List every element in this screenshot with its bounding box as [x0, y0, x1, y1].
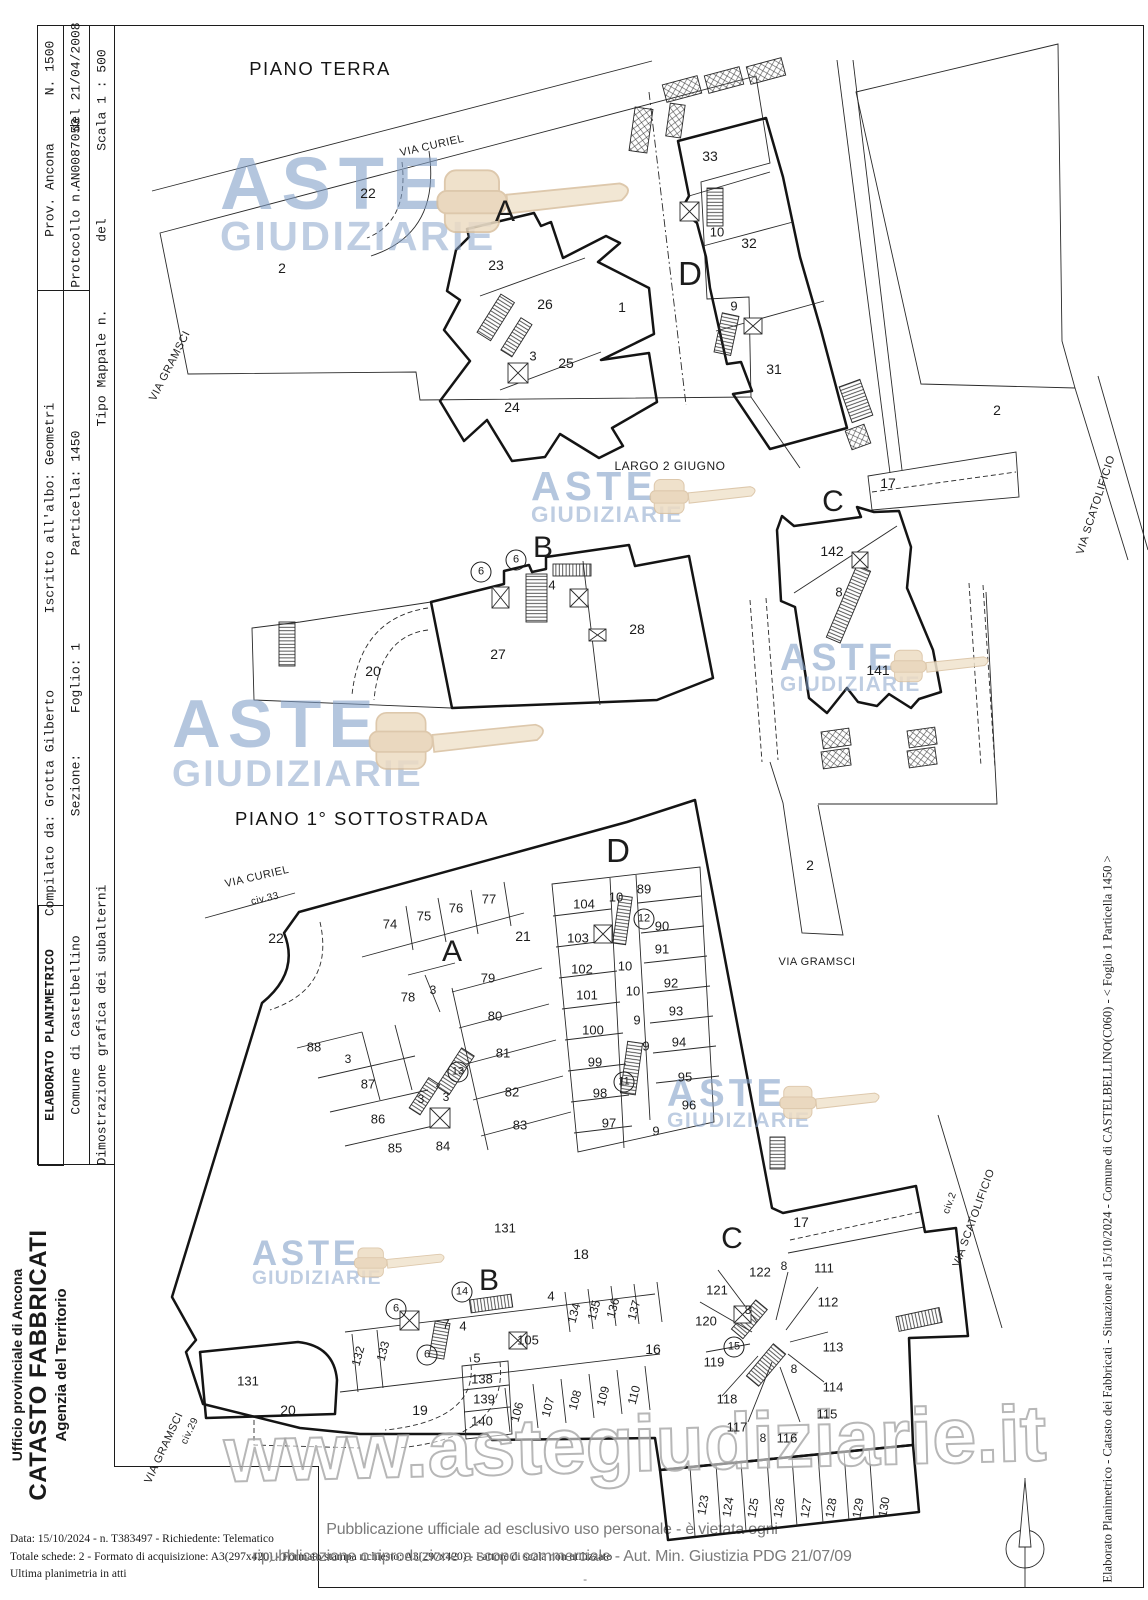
- plan-labels-layer: PIANO TERRA PIANO 1° SOTTOSTRADA VIA CUR…: [0, 0, 1148, 1600]
- parcel-number: 98: [593, 1086, 607, 1101]
- parcel-number: 95: [678, 1070, 692, 1085]
- parcel-number: 119: [704, 1355, 725, 1370]
- parcel-number: 134: [565, 1302, 584, 1325]
- parcel-number: 28: [629, 621, 645, 637]
- parcel-number: 99: [588, 1055, 602, 1070]
- parcel-number: 100: [582, 1023, 604, 1038]
- parcel-number: 115: [817, 1407, 838, 1422]
- parcel-number: 132: [349, 1345, 368, 1368]
- parcel-number: 77: [482, 892, 496, 907]
- parcel-number: 125: [744, 1497, 761, 1519]
- parcel-number: 108: [566, 1389, 585, 1412]
- parcel-number: 122: [749, 1265, 771, 1280]
- parcel-number: 129: [849, 1497, 866, 1519]
- parcel-number: 8: [745, 1303, 752, 1317]
- parcel-number: 105: [517, 1333, 539, 1348]
- building-letter: B: [533, 531, 553, 565]
- parcel-number: 97: [602, 1116, 616, 1131]
- parcel-number: 110: [625, 1384, 643, 1406]
- parcel-number: 107: [539, 1396, 558, 1419]
- parcel-number: 91: [655, 942, 669, 957]
- parcel-number: 94: [672, 1035, 686, 1050]
- parcel-number: 81: [496, 1046, 510, 1061]
- parcel-number: 116: [777, 1431, 798, 1446]
- parcel-number: 21: [515, 928, 531, 944]
- parcel-number: 75: [417, 909, 431, 924]
- street-label: VIA SCATOLIFICIO: [951, 1167, 998, 1268]
- parcel-number: 136: [604, 1297, 623, 1320]
- parcel-number: 4: [548, 578, 555, 593]
- parcel-number: 24: [504, 399, 520, 415]
- parcel-number: 9: [730, 299, 737, 314]
- parcel-number: 109: [594, 1385, 613, 1408]
- parcel-number: 10: [710, 225, 724, 240]
- parcel-number: 17: [793, 1214, 809, 1230]
- building-letter: B: [479, 1264, 499, 1298]
- parcel-number: 8: [760, 1431, 767, 1445]
- parcel-number: 23: [488, 257, 504, 273]
- parcel-number: 12: [634, 909, 655, 930]
- parcel-number: 102: [571, 962, 593, 977]
- parcel-number: 10: [618, 959, 632, 974]
- parcel-number: 84: [436, 1139, 450, 1154]
- parcel-number: 96: [682, 1098, 696, 1113]
- parcel-number: 126: [770, 1497, 787, 1519]
- building-letter: D: [678, 255, 702, 293]
- parcel-number: 10: [609, 890, 623, 905]
- parcel-number: 8: [791, 1362, 798, 1376]
- parcel-number: 83: [513, 1118, 527, 1133]
- building-letter: C: [721, 1222, 743, 1256]
- parcel-number: 106: [508, 1401, 527, 1424]
- parcel-number: 85: [388, 1141, 402, 1156]
- parcel-number: 4: [547, 1289, 554, 1304]
- parcel-number: 82: [505, 1085, 519, 1100]
- building-letter: C: [822, 485, 844, 519]
- building-letter: A: [495, 195, 515, 229]
- parcel-number: 6: [417, 1345, 438, 1366]
- parcel-number: 124: [719, 1496, 736, 1518]
- parcel-number: 123: [694, 1494, 711, 1516]
- parcel-number: 25: [558, 355, 574, 371]
- parcel-number: 133: [374, 1340, 393, 1363]
- street-label: LARGO 2 GIUGNO: [614, 459, 725, 473]
- parcel-number: 140: [471, 1414, 493, 1429]
- parcel-number: 103: [567, 931, 589, 946]
- parcel-number: 120: [695, 1314, 717, 1329]
- parcel-number: 104: [573, 897, 595, 912]
- building-letter: A: [442, 935, 462, 969]
- parcel-number: 76: [449, 901, 463, 916]
- parcel-number: 5: [473, 1351, 480, 1366]
- parcel-number: 6: [471, 562, 492, 583]
- parcel-number: 2: [278, 260, 286, 276]
- parcel-number: 101: [576, 988, 598, 1003]
- parcel-number: 6: [506, 550, 527, 571]
- parcel-number: 74: [383, 917, 397, 932]
- parcel-number: 9: [652, 1124, 659, 1139]
- parcel-number: 4: [459, 1319, 466, 1334]
- parcel-number: 127: [797, 1497, 814, 1519]
- parcel-number: 86: [371, 1112, 385, 1127]
- parcel-number: 80: [488, 1009, 502, 1024]
- parcel-number: 33: [702, 148, 718, 164]
- parcel-number: 16: [645, 1341, 661, 1357]
- parcel-number: 9: [642, 1039, 649, 1054]
- parcel-number: 118: [717, 1392, 738, 1407]
- parcel-number: 114: [823, 1380, 844, 1395]
- parcel-number: 6: [386, 1299, 407, 1320]
- parcel-number: 19: [412, 1402, 428, 1418]
- parcel-number: 3: [345, 1052, 352, 1066]
- parcel-number: 1: [618, 299, 626, 315]
- parcel-number: 15: [724, 1337, 745, 1358]
- parcel-number: 20: [280, 1402, 296, 1418]
- street-label: VIA CURIEL: [224, 864, 291, 890]
- street-label: VIA CURIEL: [399, 133, 466, 159]
- parcel-number: 2: [993, 402, 1001, 418]
- parcel-number: 3: [443, 1090, 450, 1104]
- parcel-number: 141: [866, 662, 889, 678]
- parcel-number: 90: [655, 919, 669, 934]
- street-label: VIA GRAMSCI: [778, 956, 855, 968]
- terra-plan-title: PIANO TERRA: [249, 58, 391, 80]
- building-letter: D: [606, 832, 630, 870]
- parcel-number: 2: [806, 857, 814, 873]
- sottostrada-plan-title: PIANO 1° SOTTOSTRADA: [235, 808, 489, 830]
- parcel-number: 17: [880, 475, 896, 491]
- parcel-number: 117: [727, 1420, 748, 1435]
- street-label: VIA GRAMSCI: [147, 329, 193, 403]
- parcel-number: 121: [706, 1283, 728, 1298]
- parcel-number: 14: [452, 1282, 473, 1303]
- parcel-number: 88: [307, 1040, 321, 1055]
- parcel-number: 131: [237, 1374, 259, 1389]
- parcel-number: 22: [268, 930, 284, 946]
- parcel-number: 8: [835, 585, 842, 600]
- parcel-number: 128: [822, 1497, 839, 1519]
- street-label: civ.33: [250, 890, 280, 907]
- street-label: VIA GRAMSCI: [142, 1411, 185, 1486]
- parcel-number: 22: [360, 185, 376, 201]
- parcel-number: 20: [365, 663, 381, 679]
- parcel-number: 92: [664, 976, 678, 991]
- parcel-number: 26: [537, 296, 553, 312]
- cadastral-document-page: ELABORATO PLANIMETRICO Compilato da: Gro…: [0, 0, 1148, 1600]
- parcel-number: 3: [430, 983, 437, 997]
- parcel-number: 3: [529, 349, 536, 364]
- parcel-number: 10: [626, 984, 640, 999]
- parcel-number: 13: [448, 1062, 469, 1083]
- parcel-number: 9: [633, 1013, 640, 1028]
- parcel-number: 137: [625, 1299, 644, 1322]
- parcel-number: 87: [361, 1077, 375, 1092]
- parcel-number: 142: [820, 543, 843, 559]
- parcel-number: 31: [766, 361, 782, 377]
- parcel-number: 139: [473, 1392, 495, 1407]
- parcel-number: 32: [741, 235, 757, 251]
- parcel-number: 11: [614, 1072, 635, 1093]
- street-label: VIA SCATOLIFICIO: [1074, 454, 1117, 556]
- parcel-number: 131: [494, 1221, 516, 1236]
- parcel-number: 3: [418, 1092, 425, 1106]
- parcel-number: 111: [814, 1261, 834, 1276]
- parcel-number: 7: [442, 1317, 449, 1332]
- parcel-number: 93: [669, 1004, 683, 1019]
- parcel-number: 89: [637, 882, 651, 897]
- parcel-number: 78: [401, 990, 415, 1005]
- parcel-number: 18: [573, 1246, 589, 1262]
- parcel-number: 113: [823, 1340, 844, 1355]
- street-label: civ.2: [941, 1191, 959, 1216]
- parcel-number: 8: [781, 1259, 788, 1273]
- parcel-number: 112: [818, 1295, 839, 1310]
- parcel-number: 27: [490, 646, 506, 662]
- parcel-number: 79: [481, 971, 495, 986]
- parcel-number: 135: [585, 1299, 604, 1322]
- parcel-number: 130: [875, 1496, 892, 1518]
- parcel-number: 138: [471, 1372, 493, 1387]
